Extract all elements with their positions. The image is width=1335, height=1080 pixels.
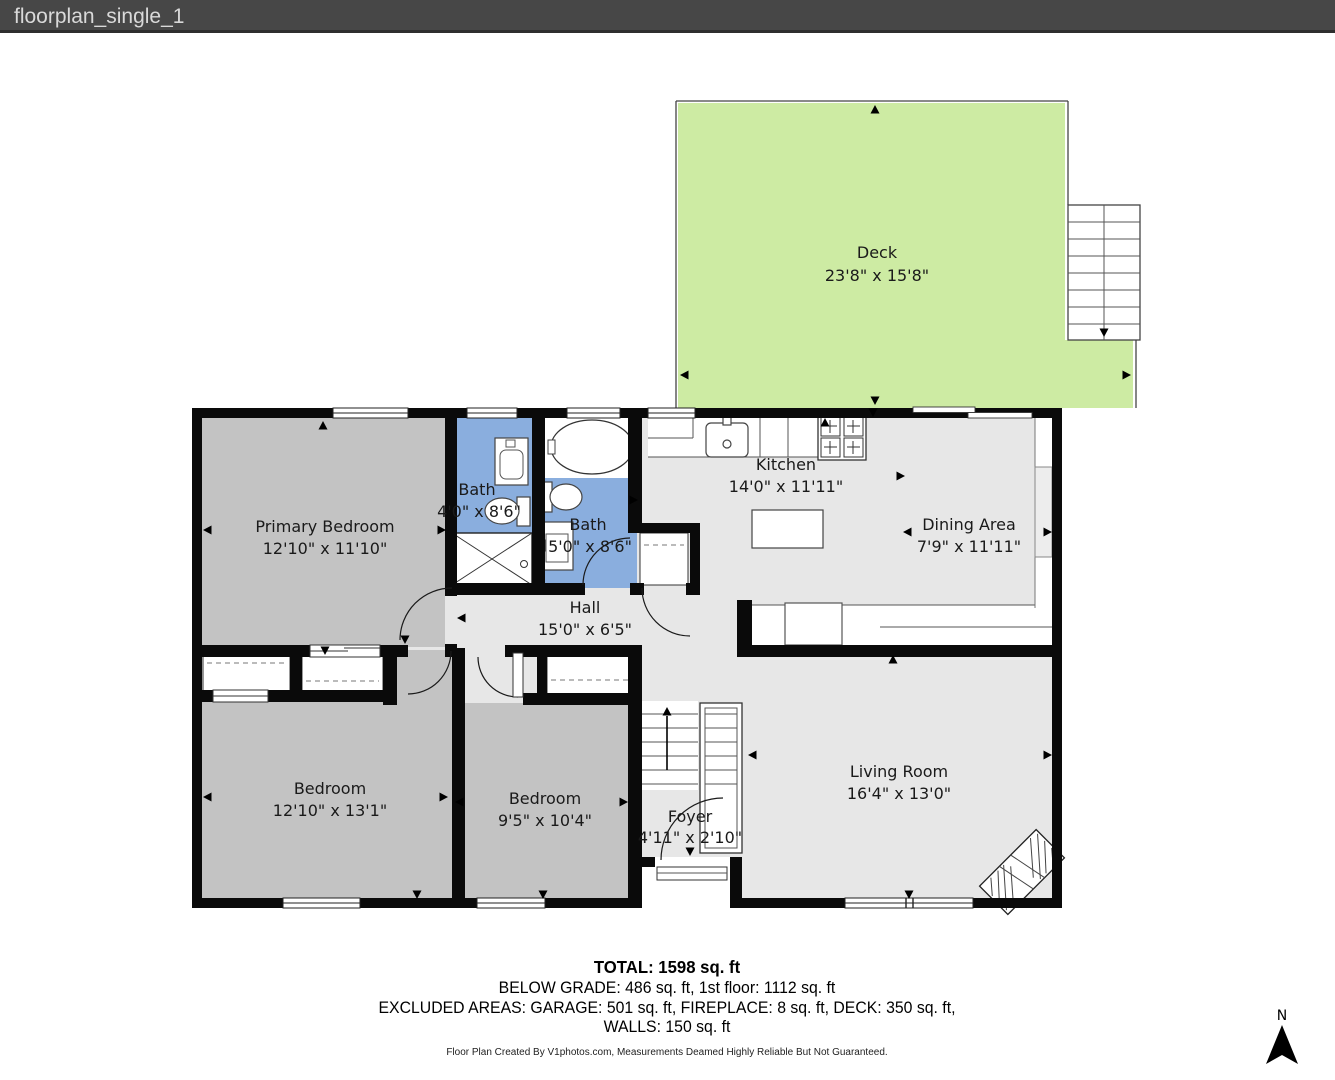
dining-label: Dining Area [922,515,1016,534]
foyer-dims: 4'11" x 2'10" [638,828,742,847]
compass-n-label: N [1277,1008,1287,1024]
dining-dims: 7'9" x 11'11" [917,537,1021,556]
room-bedroom-left [202,700,452,900]
summary-total: TOTAL: 1598 sq. ft [594,956,740,977]
peninsula-counter [752,603,1052,645]
living-dims: 16'4" x 13'0" [847,784,951,803]
summary-line4: WALLS: 150 sq. ft [604,1018,731,1037]
kitchen-island [752,510,823,548]
footer-credit: Floor Plan Created By V1photos.com, Meas… [446,1047,887,1058]
north-arrow-icon [1266,1025,1298,1064]
bath-small-dims: 4'0" x 8'6" [437,502,521,521]
kitchen-counter [648,413,832,457]
window-title: floorplan_single_1 [14,5,184,28]
title-bar: floorplan_single_1 [0,0,1335,33]
bedroom-left-dims: 12'10" x 13'1" [273,801,387,820]
hall-dims: 15'0" x 6'5" [538,620,632,639]
foyer-label: Foyer [668,807,713,826]
compass: N [1266,1008,1298,1064]
kitchen-dims: 14'0" x 11'11" [729,477,843,496]
bedroom-mid-label: Bedroom [509,789,581,808]
room-deck: Deck 23'8" x 15'8" [676,101,1140,408]
hall-closet [640,533,688,585]
deck-stairs [1068,205,1140,340]
area-summary: TOTAL: 1598 sq. ft BELOW GRADE: 486 sq. … [379,956,956,1058]
primary-bedroom-dims: 12'10" x 11'10" [263,539,388,558]
living-label: Living Room [850,762,948,781]
bedroom-mid-dims: 9'5" x 10'4" [498,811,592,830]
floorplan-viewer: floorplan_single_1 Deck 23'8" x [0,0,1335,1080]
dishwasher [785,603,842,645]
bath-small-label: Bath [458,480,495,499]
hall-label: Hall [570,598,601,617]
bedroom-left-label: Bedroom [294,779,366,798]
deck-label: Deck [857,243,898,262]
summary-line2: BELOW GRADE: 486 sq. ft, 1st floor: 1112… [499,979,836,998]
shower [452,533,532,585]
kitchen-label: Kitchen [756,455,816,474]
bath-main-dims: 5'0" x 8'6" [548,537,632,556]
primary-bedroom-label: Primary Bedroom [255,517,394,536]
bath-main-label: Bath [569,515,606,534]
bathtub [551,420,633,474]
dining-window-ledge [1035,418,1052,608]
deck-dims: 23'8" x 15'8" [825,266,929,285]
summary-line3: EXCLUDED AREAS: GARAGE: 501 sq. ft, FIRE… [379,999,956,1018]
front-door [655,857,730,880]
floorplan-canvas: floorplan_single_1 Deck 23'8" x [0,0,1335,1080]
